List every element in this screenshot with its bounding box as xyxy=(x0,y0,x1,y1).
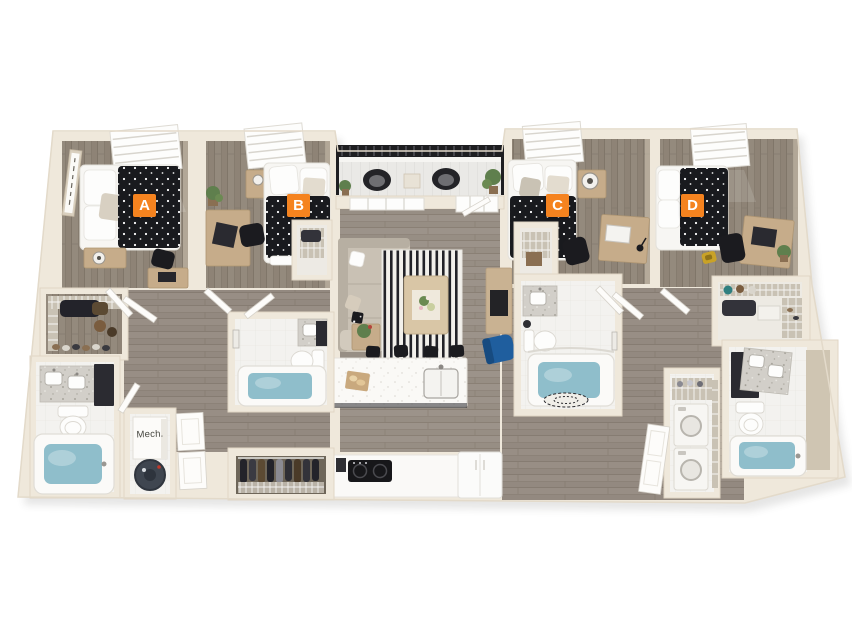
toaster xyxy=(336,458,346,472)
bedroom-b-window xyxy=(244,123,306,169)
nightstand-a xyxy=(84,248,126,268)
bedroom-c-badge: C xyxy=(546,194,569,217)
bedroom-b xyxy=(206,123,332,288)
tv xyxy=(490,290,508,316)
side-table xyxy=(352,324,380,350)
bedroom-d-window xyxy=(690,124,749,171)
hat xyxy=(736,285,744,293)
nightstand-c xyxy=(578,170,606,198)
water-heater xyxy=(135,460,165,490)
desk-chair xyxy=(718,232,746,264)
vanity-d xyxy=(731,348,792,398)
bag xyxy=(94,320,106,332)
bedroom-a-badge: A xyxy=(133,194,156,217)
hat xyxy=(748,286,756,294)
living-room xyxy=(336,196,516,452)
towel xyxy=(233,330,239,348)
bathtub-a xyxy=(34,434,114,494)
balcony xyxy=(336,145,504,196)
cutting-board xyxy=(345,371,370,392)
storage-box xyxy=(758,306,780,320)
desk-chair xyxy=(238,222,265,248)
hanging-clothes xyxy=(722,300,756,316)
trash-can xyxy=(523,320,531,328)
laundry-closet xyxy=(664,368,720,498)
living-window xyxy=(350,198,424,210)
bedroom-b-badge: B xyxy=(287,194,310,217)
wall-inner-face xyxy=(183,141,188,288)
island-sink xyxy=(424,365,458,399)
wall-inner-face xyxy=(793,139,798,287)
floor-plan-stage: A B C D Mech. xyxy=(0,0,852,639)
washer xyxy=(674,404,708,446)
bathtub-d xyxy=(730,436,806,476)
bedroom-a xyxy=(62,125,188,288)
bathroom-a xyxy=(30,356,120,498)
balcony-chair xyxy=(363,169,391,191)
toilet-a xyxy=(58,406,88,438)
balcony-rim xyxy=(338,157,502,162)
storage-box xyxy=(526,252,542,266)
coffee-table xyxy=(404,276,448,334)
bedroom-d-badge: D xyxy=(681,194,704,217)
linen-cabinet xyxy=(94,364,114,406)
closet-d xyxy=(712,276,810,346)
closet-b xyxy=(292,220,332,280)
mech-closet xyxy=(124,408,176,499)
balcony-chair xyxy=(432,168,460,190)
round-rug xyxy=(544,393,588,407)
bedroom-d xyxy=(656,124,798,287)
bed-a xyxy=(80,165,180,250)
bedroom-c xyxy=(508,121,650,284)
hat xyxy=(724,286,733,295)
entry-closet xyxy=(228,448,334,500)
floor-plan-rendering xyxy=(0,0,852,639)
bathroom-d xyxy=(722,340,838,478)
balcony-table xyxy=(404,174,420,188)
bag xyxy=(107,327,117,337)
island-shadow xyxy=(333,403,467,408)
towel xyxy=(612,332,617,350)
vanity-a xyxy=(40,364,114,406)
mech-closet-label: Mech. xyxy=(128,428,172,441)
cooktop xyxy=(348,460,392,482)
bathtub-b xyxy=(238,366,326,406)
bathroom-b xyxy=(228,312,334,412)
dryer xyxy=(674,448,708,490)
closet-c xyxy=(514,222,558,280)
vanity-b xyxy=(298,319,327,346)
refrigerator xyxy=(458,452,502,498)
